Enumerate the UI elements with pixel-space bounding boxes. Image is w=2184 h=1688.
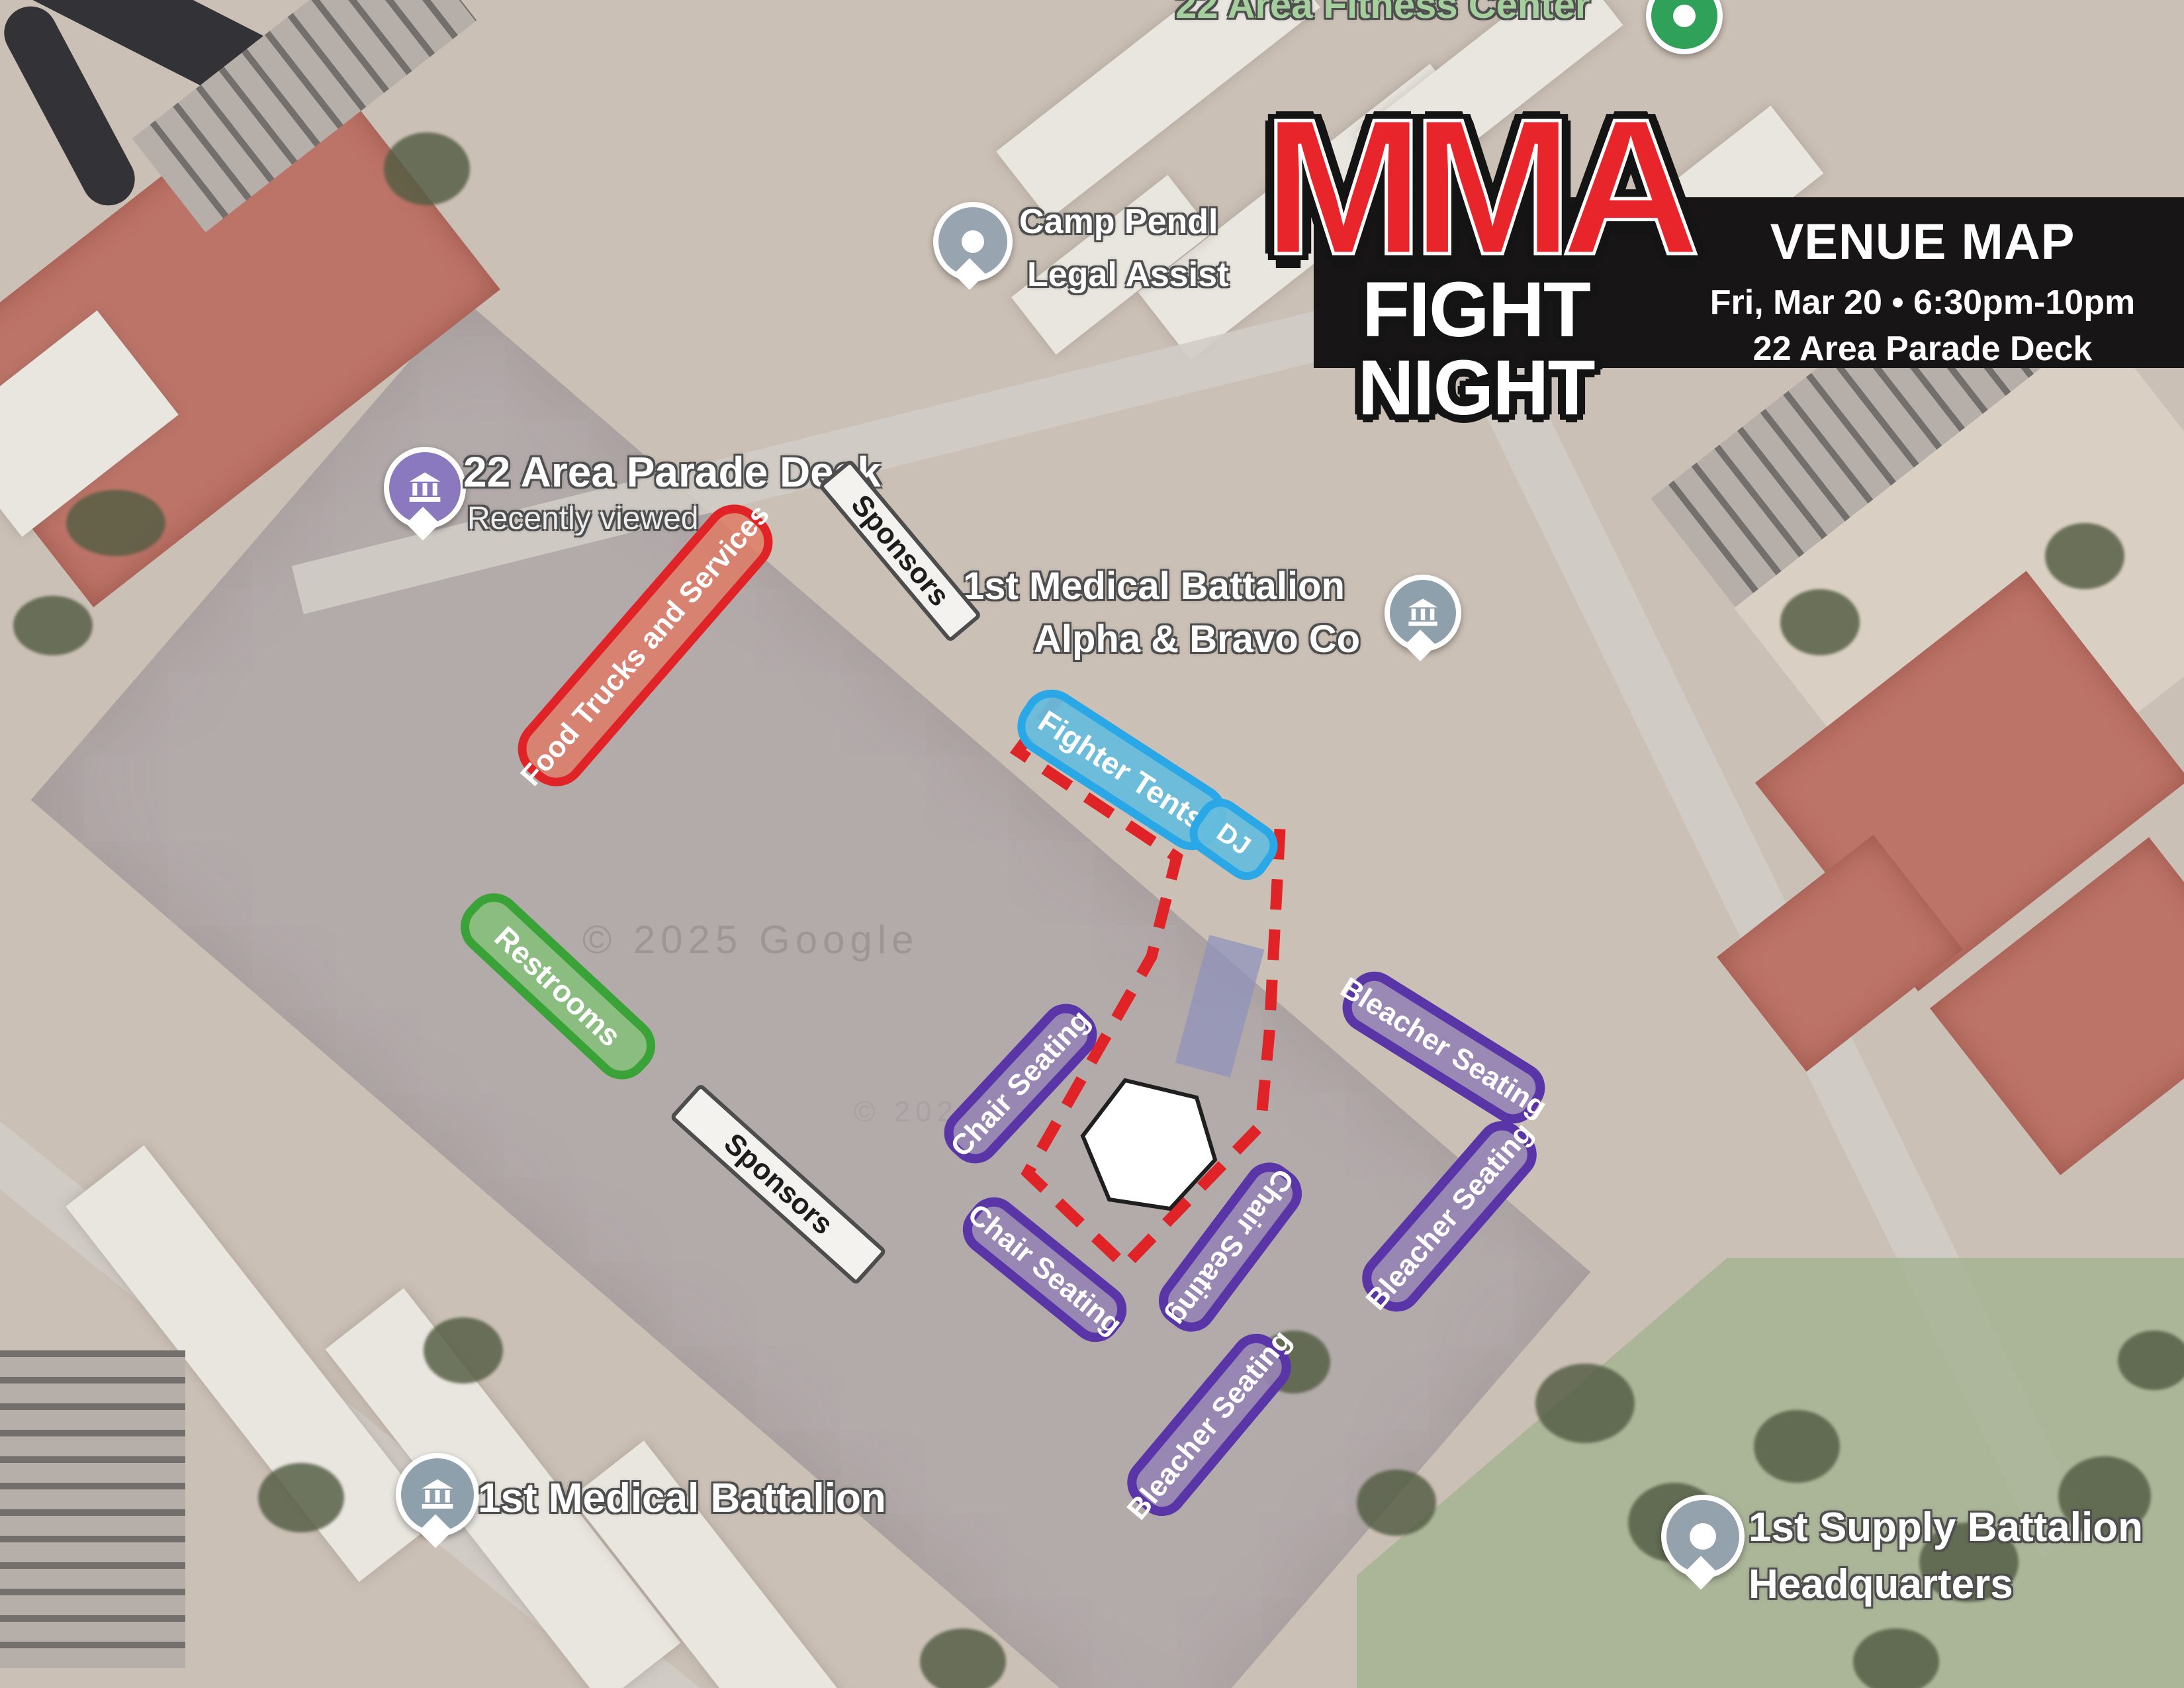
event-date-time: Fri, Mar 20 • 6:30pm-10pm (1684, 283, 2161, 322)
event-location: 22 Area Parade Deck (1684, 329, 2161, 369)
mma-fight-night-logo: MMA FIGHT NIGHT (1257, 98, 1694, 427)
banner-text-block: VENUE MAP Fri, Mar 20 • 6:30pm-10pm 22 A… (1684, 213, 2161, 369)
zone-label: DJ (1211, 818, 1256, 861)
venue-map-screenshot: © 2025 Google © 202 22 Area Fitness Cent… (0, 0, 2184, 1688)
logo-mma-text: MMA (1257, 98, 1694, 276)
octagon-cage (1083, 1080, 1215, 1209)
venue-map-title: VENUE MAP (1684, 213, 2161, 271)
